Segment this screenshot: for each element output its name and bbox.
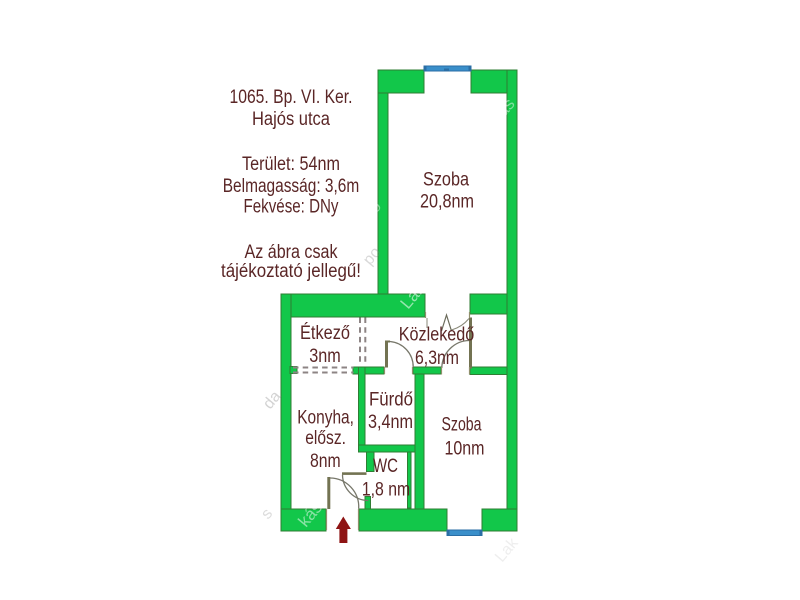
svg-text:WC: WC xyxy=(373,456,398,477)
svg-text:Konyha,: Konyha, xyxy=(297,407,354,428)
svg-text:elősz.: elősz. xyxy=(305,428,346,449)
svg-text:10nm: 10nm xyxy=(445,439,485,460)
svg-text:3nm: 3nm xyxy=(309,346,341,367)
svg-text:tájékoztató jellegű!: tájékoztató jellegű! xyxy=(221,261,361,282)
svg-text:1,8 nm: 1,8 nm xyxy=(362,480,410,501)
svg-text:8nm: 8nm xyxy=(310,451,341,472)
svg-text:Közlekedő: Közlekedő xyxy=(399,325,475,346)
svg-text:Fürdő: Fürdő xyxy=(369,390,413,411)
svg-text:6,3nm: 6,3nm xyxy=(415,348,459,369)
svg-text:Étkező: Étkező xyxy=(300,323,350,344)
svg-text:Szoba: Szoba xyxy=(423,170,469,191)
svg-text:Belmagasság: 3,6m: Belmagasság: 3,6m xyxy=(223,176,360,197)
svg-text:Hajós utca: Hajós utca xyxy=(252,109,330,130)
svg-text:1065. Bp. VI. Ker.: 1065. Bp. VI. Ker. xyxy=(230,87,353,108)
svg-text:Az ábra csak: Az ábra csak xyxy=(245,242,338,263)
svg-text:Terület: 54nm: Terület: 54nm xyxy=(242,154,340,175)
svg-text:Fekvése: DNy: Fekvése: DNy xyxy=(244,197,339,218)
svg-text:3,4nm: 3,4nm xyxy=(368,412,413,433)
svg-text:20,8nm: 20,8nm xyxy=(420,192,474,213)
svg-text:Szoba: Szoba xyxy=(442,415,482,436)
